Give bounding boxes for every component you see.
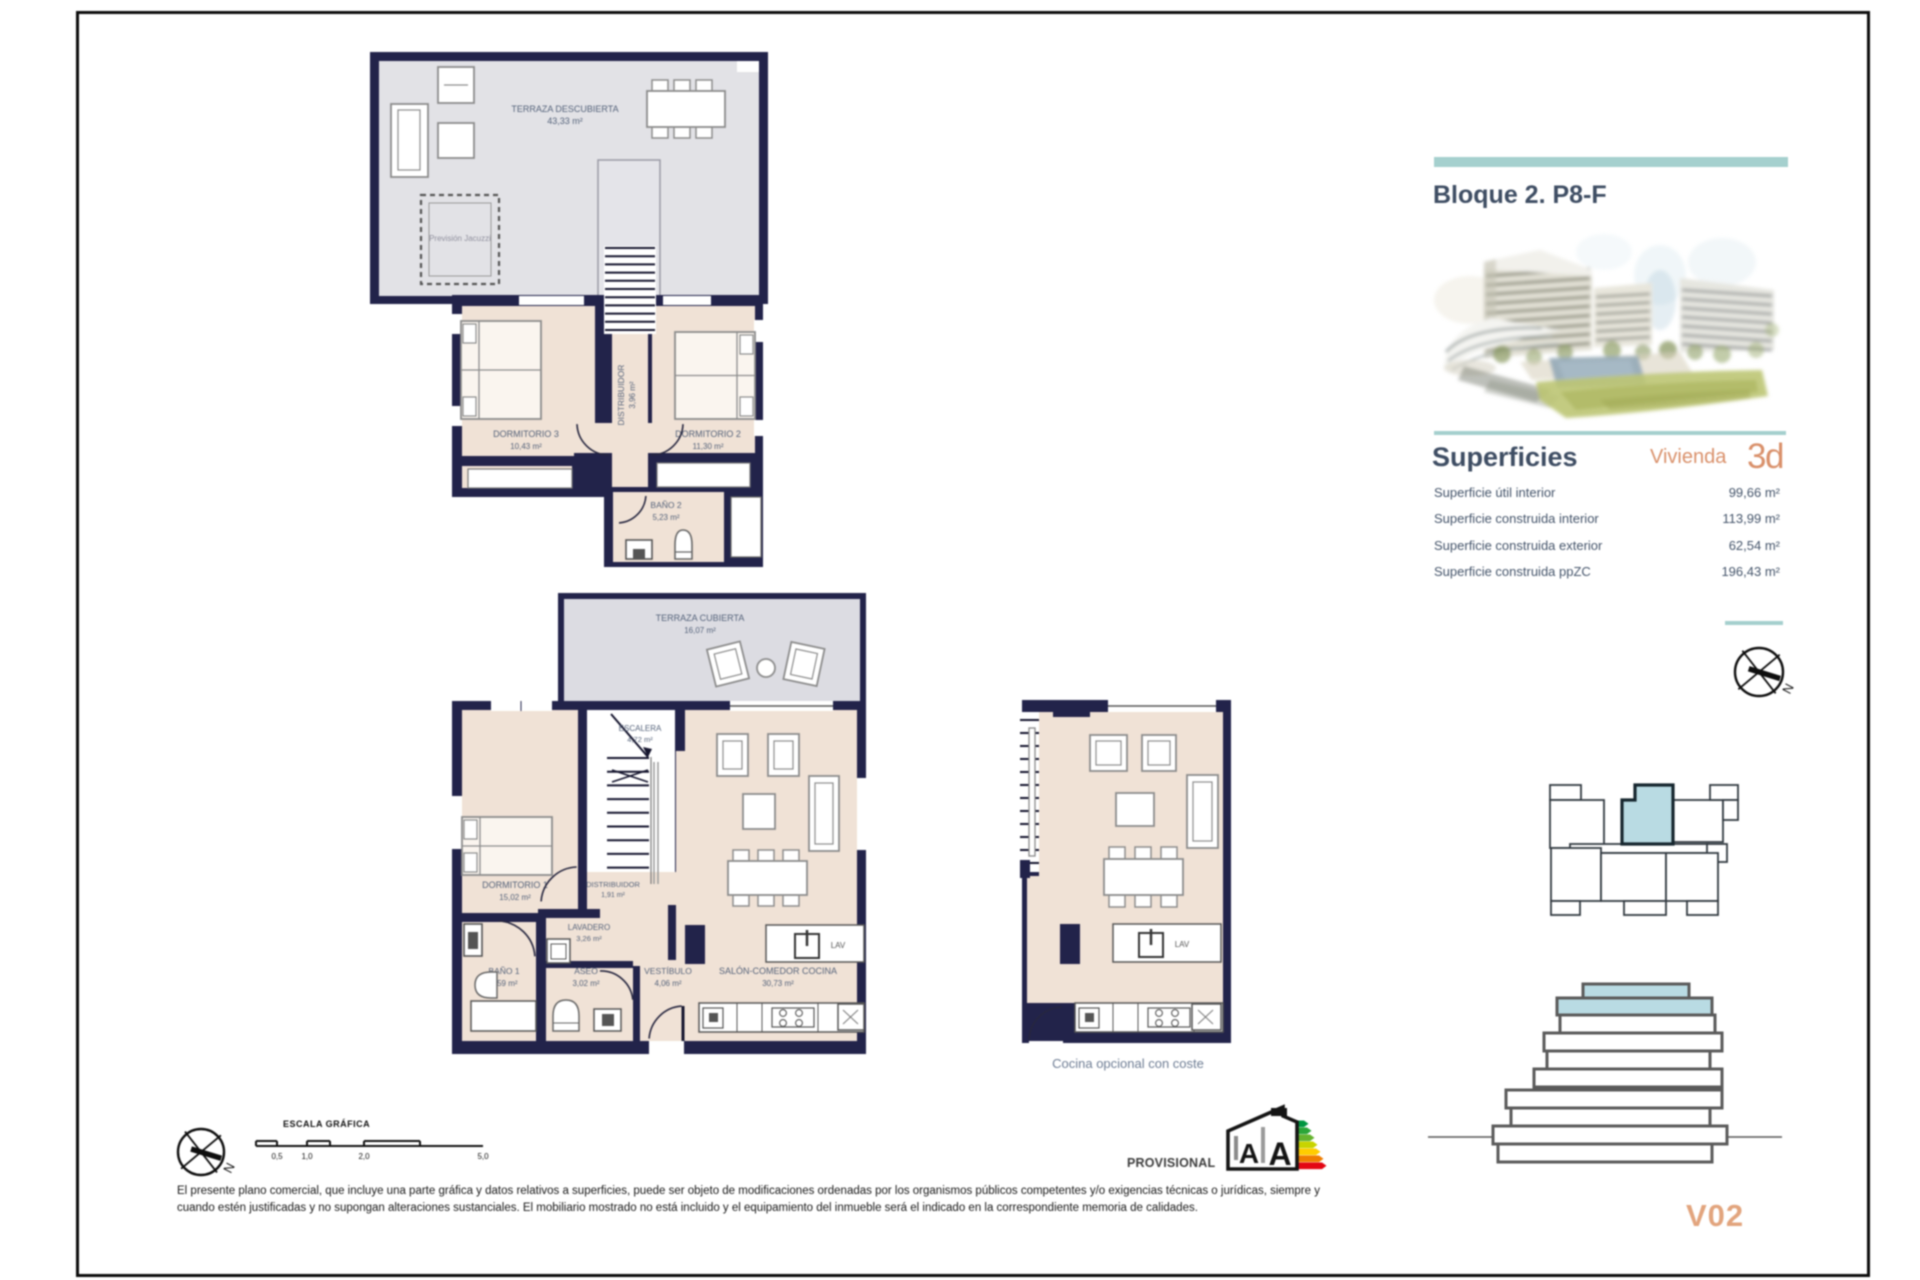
svg-text:A: A xyxy=(1239,1138,1259,1169)
svg-text:A: A xyxy=(1268,1136,1291,1172)
